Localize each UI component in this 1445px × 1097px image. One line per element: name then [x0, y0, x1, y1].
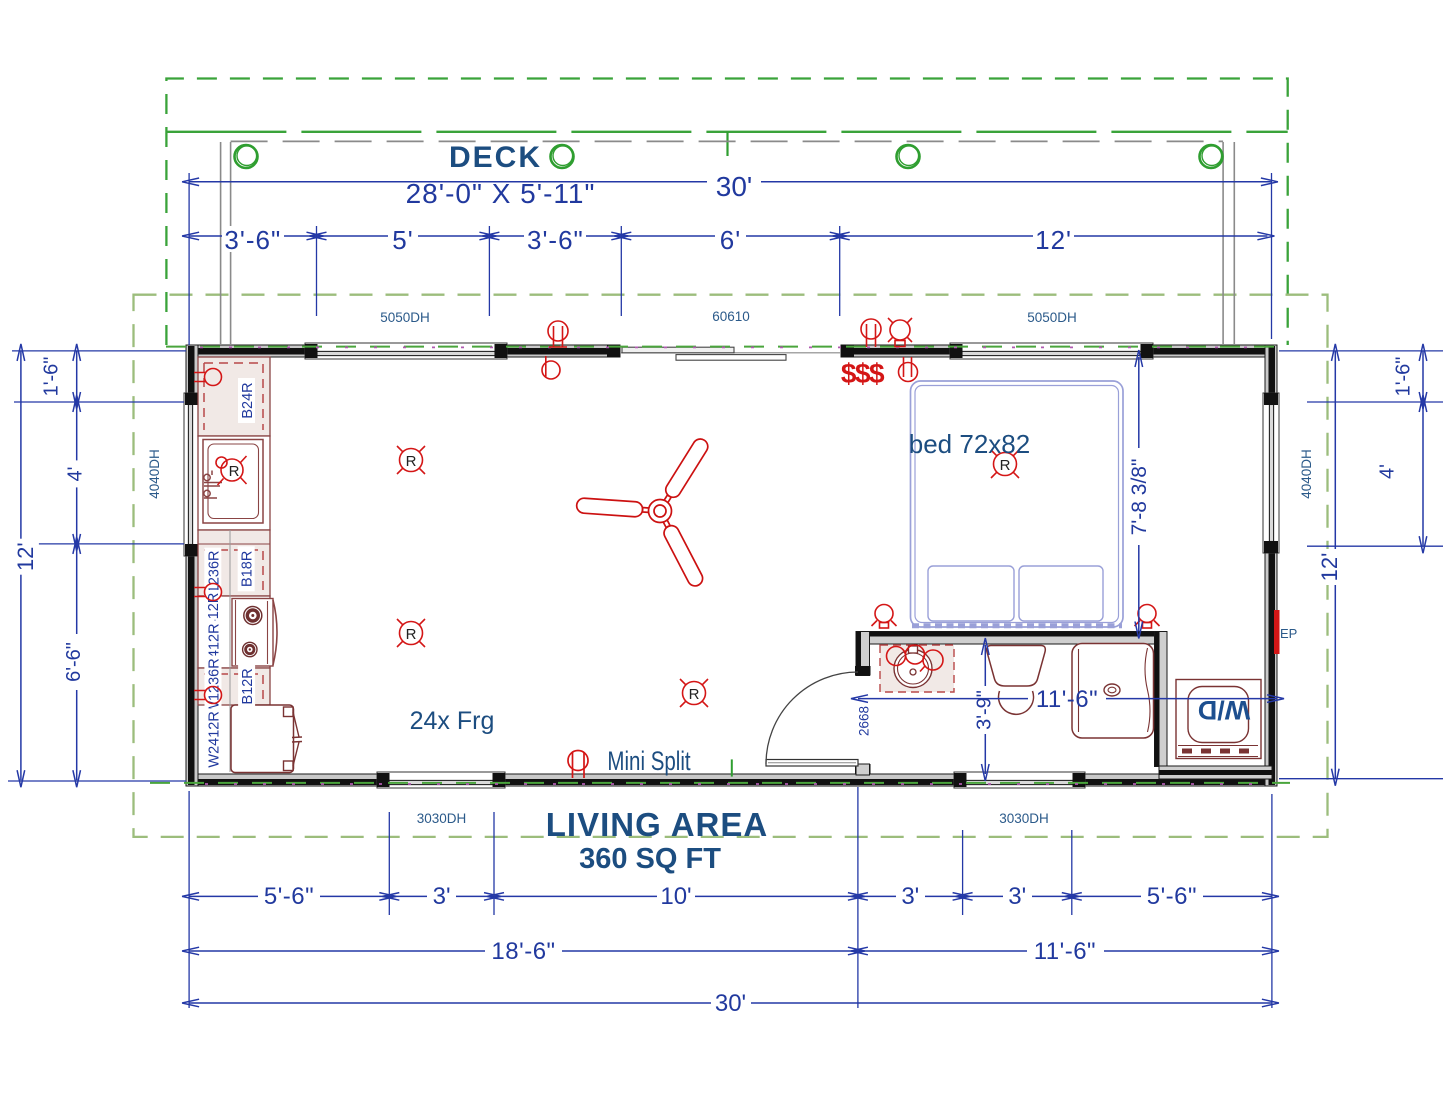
svg-text:6': 6' — [720, 225, 741, 255]
svg-text:W/D: W/D — [1198, 695, 1250, 725]
svg-text:3030DH: 3030DH — [999, 811, 1049, 826]
svg-text:12': 12' — [1035, 225, 1072, 255]
svg-text:5'-6": 5'-6" — [1147, 883, 1197, 910]
svg-text:R: R — [689, 686, 700, 703]
svg-text:24x Frg: 24x Frg — [410, 707, 495, 735]
svg-text:5'-6": 5'-6" — [264, 883, 314, 910]
svg-text:18'-6": 18'-6" — [491, 938, 555, 965]
svg-text:12': 12' — [13, 542, 38, 571]
svg-text:R: R — [229, 463, 240, 480]
svg-text:B24R: B24R — [240, 382, 256, 418]
svg-text:11'-6": 11'-6" — [1034, 938, 1096, 965]
svg-text:30': 30' — [716, 171, 753, 202]
svg-text:360 SQ FT: 360 SQ FT — [579, 843, 721, 875]
svg-text:5': 5' — [392, 225, 413, 255]
svg-text:R: R — [406, 453, 417, 470]
svg-text:R: R — [1000, 457, 1011, 474]
svg-text:3': 3' — [433, 883, 451, 910]
svg-text:5050DH: 5050DH — [380, 310, 430, 325]
svg-text:3': 3' — [1008, 883, 1026, 910]
svg-text:EP: EP — [1280, 626, 1297, 641]
svg-text:B12R: B12R — [240, 668, 256, 704]
svg-text:R: R — [406, 626, 417, 643]
svg-text:B18R: B18R — [240, 551, 256, 587]
svg-text:10': 10' — [660, 883, 691, 910]
svg-text:28'-0" X 5'-11": 28'-0" X 5'-11" — [406, 178, 596, 209]
svg-text:12': 12' — [1317, 553, 1342, 582]
svg-text:W2412R: W2412R — [207, 711, 223, 767]
svg-text:$$$: $$$ — [841, 358, 885, 389]
svg-text:bed 72x82: bed 72x82 — [909, 429, 1030, 459]
svg-text:6'-6": 6'-6" — [63, 642, 85, 682]
svg-text:4040DH: 4040DH — [1299, 449, 1314, 499]
svg-text:DECK: DECK — [449, 141, 542, 174]
svg-text:5050DH: 5050DH — [1027, 310, 1077, 325]
svg-text:3'-6": 3'-6" — [224, 225, 281, 255]
svg-text:4': 4' — [64, 467, 86, 482]
svg-text:4': 4' — [1377, 464, 1399, 479]
svg-text:LIVING AREA: LIVING AREA — [546, 806, 768, 843]
svg-text:7'-8 3/8": 7'-8 3/8" — [1128, 459, 1151, 536]
svg-text:30': 30' — [715, 990, 746, 1017]
svg-text:11'-6": 11'-6" — [1036, 686, 1098, 713]
svg-text:3'-6": 3'-6" — [527, 225, 584, 255]
svg-text:1'-6": 1'-6" — [1393, 357, 1415, 397]
svg-text:Mini Split: Mini Split — [607, 746, 690, 776]
svg-text:3'-9": 3'-9" — [974, 690, 996, 730]
svg-text:2668: 2668 — [857, 706, 872, 736]
svg-text:3': 3' — [901, 883, 919, 910]
svg-text:1'-6": 1'-6" — [41, 357, 63, 397]
svg-text:4040DH: 4040DH — [147, 449, 162, 499]
svg-text:60610: 60610 — [712, 309, 750, 324]
svg-text:3030DH: 3030DH — [417, 811, 467, 826]
